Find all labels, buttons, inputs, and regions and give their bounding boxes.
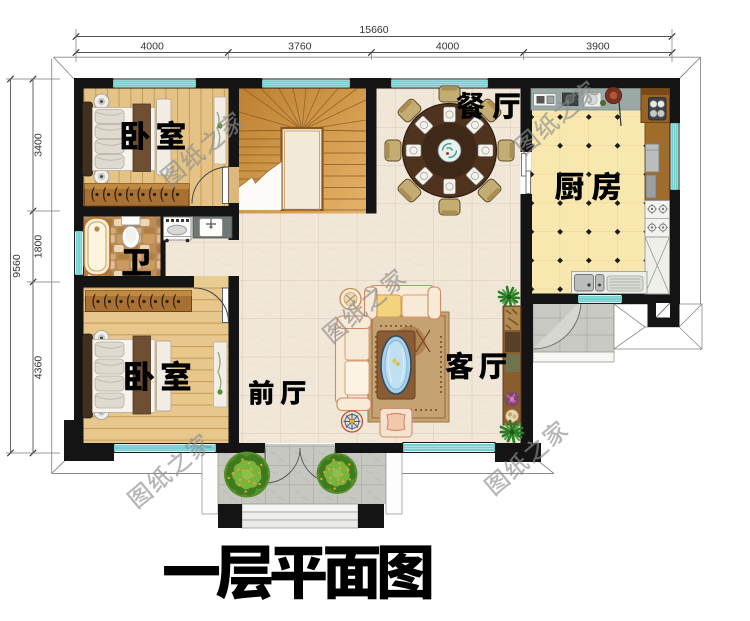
svg-text:3900: 3900 [586,41,610,53]
svg-text:1800: 1800 [33,235,45,259]
svg-text:9560: 9560 [11,254,23,278]
svg-text:4360: 4360 [33,356,45,380]
svg-text:15660: 15660 [359,24,388,36]
svg-text:4000: 4000 [436,41,460,53]
svg-text:3400: 3400 [33,133,45,157]
svg-text:4000: 4000 [140,41,164,53]
svg-text:3760: 3760 [288,41,312,53]
